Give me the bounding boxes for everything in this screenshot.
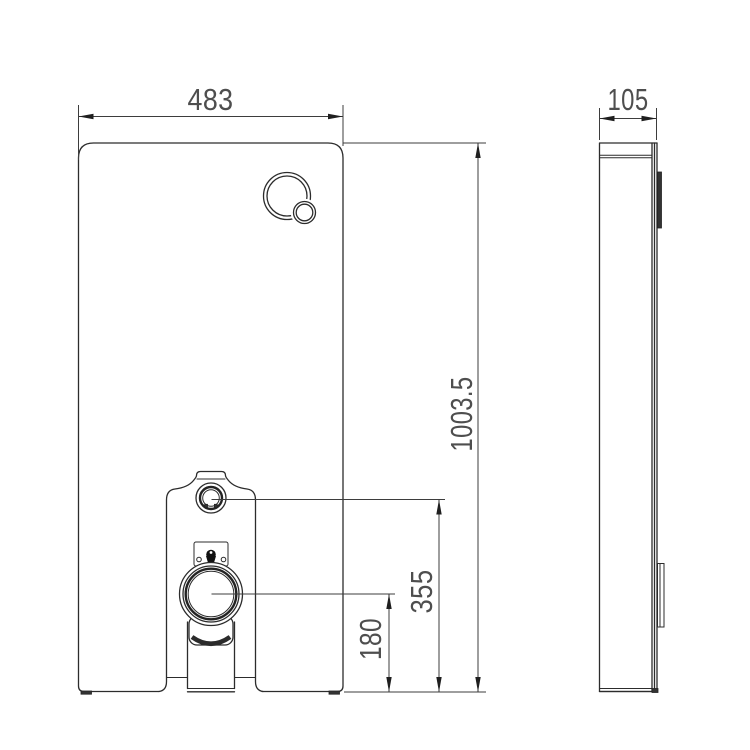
dim-depth: 105	[600, 82, 657, 140]
dim-inlet-label: 355	[404, 570, 439, 614]
front-view	[79, 143, 344, 694]
inlet-notch	[205, 504, 208, 507]
flush-button-small-halo	[291, 199, 319, 227]
foot-mark	[329, 691, 340, 694]
bracket-side-body	[658, 564, 665, 628]
dimensions: 483 105 1003.5 355	[79, 82, 657, 692]
arrowhead	[475, 143, 480, 158]
dim-width-label: 483	[188, 82, 234, 117]
flush-button-side-profile	[658, 172, 662, 228]
side-view	[600, 143, 665, 693]
arrowhead	[386, 677, 391, 692]
inlet-notch	[214, 504, 217, 507]
dim-height-label: 1003.5	[444, 377, 479, 452]
valve-dot	[210, 551, 213, 554]
side-body	[600, 143, 653, 692]
arrowhead	[436, 677, 441, 692]
dim-depth-label: 105	[608, 82, 649, 117]
foot-mark	[81, 691, 92, 694]
arrowhead	[475, 677, 480, 692]
flush-button	[264, 173, 319, 227]
technical-drawing-canvas: 483 105 1003.5 355	[0, 0, 750, 750]
dim-outlet-label: 180	[353, 618, 388, 660]
arrowhead	[79, 114, 94, 119]
foot-mark	[652, 689, 658, 693]
dim-width: 483	[79, 82, 344, 160]
water-inlet-connection	[196, 483, 226, 513]
dim-inlet-height: 355	[212, 500, 446, 693]
sanitary-module-drawing: 483 105 1003.5 355	[0, 0, 750, 750]
mounting-bracket-side	[658, 564, 665, 628]
arrowhead	[386, 594, 391, 609]
arrowhead	[328, 114, 343, 119]
arrowhead	[436, 500, 441, 515]
